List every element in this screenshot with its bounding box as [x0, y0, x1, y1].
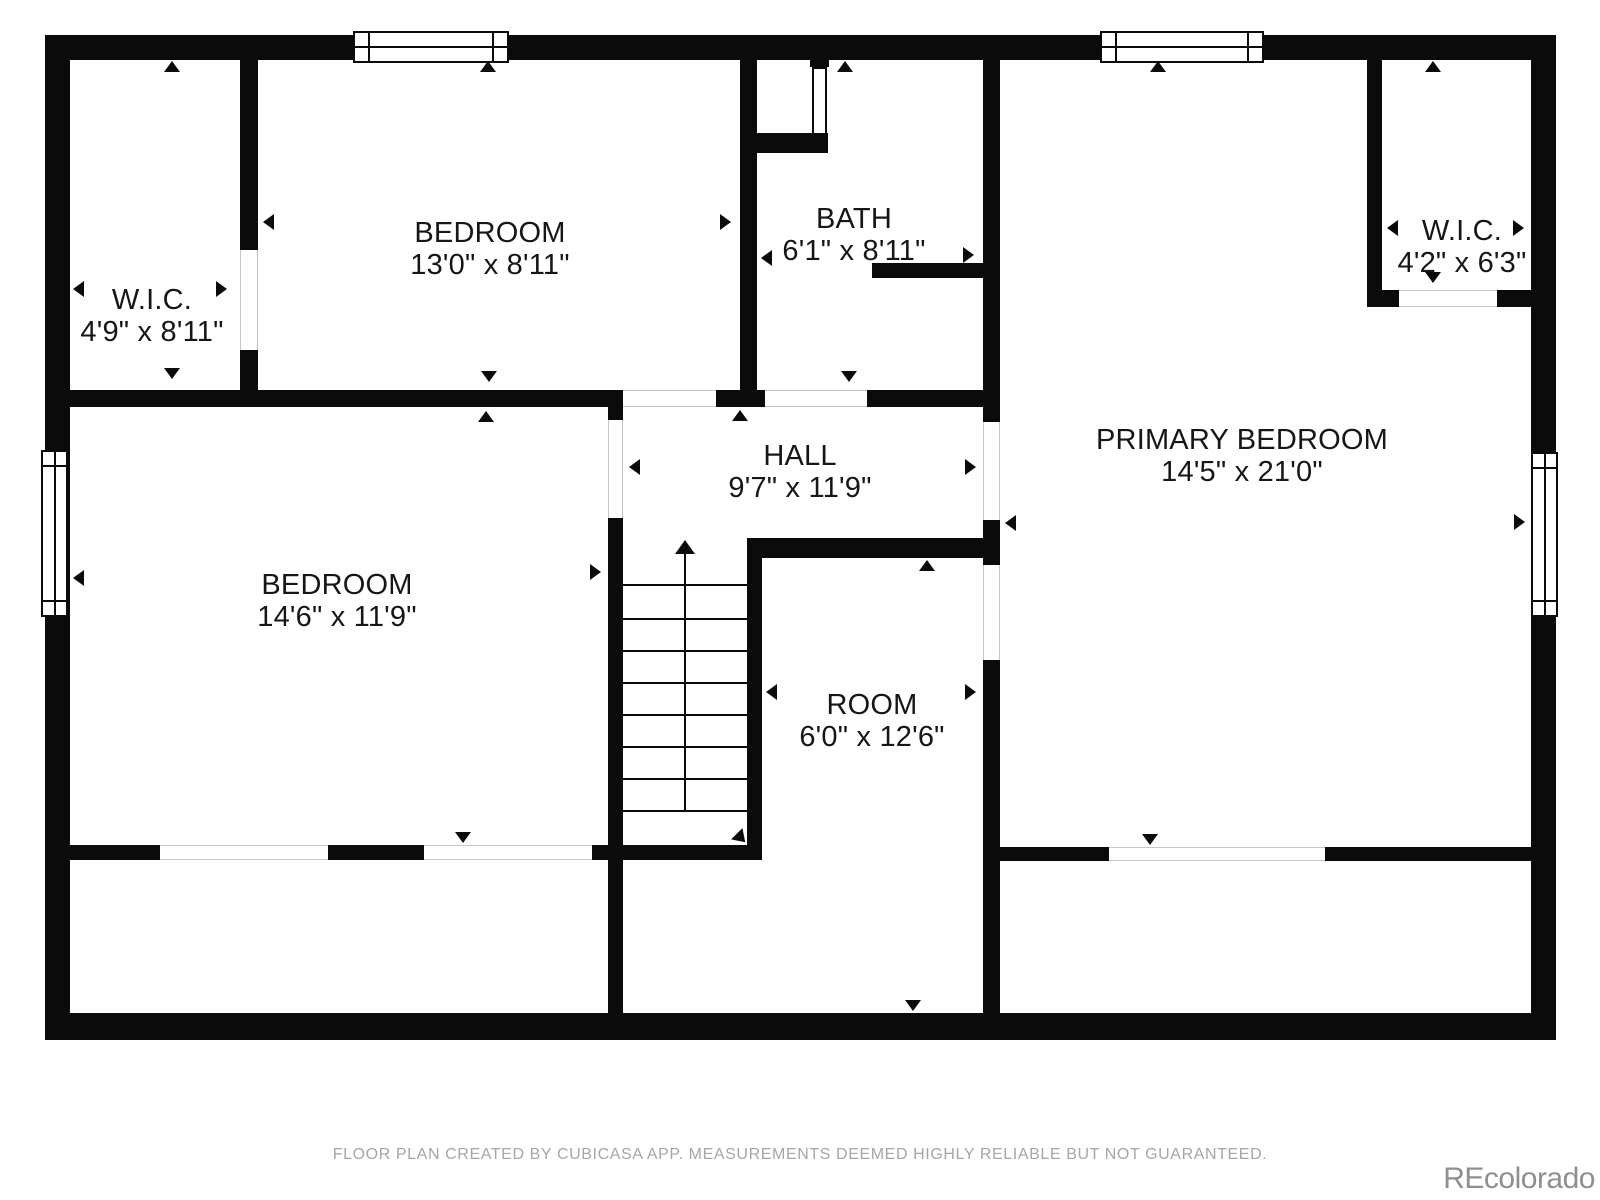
wall — [740, 60, 757, 390]
room-label-bath: BATH 6'1" x 8'11" — [782, 203, 925, 267]
window-symbol — [1100, 31, 1264, 63]
watermark-text: REcolorado — [1443, 1162, 1595, 1196]
room-name: W.I.C. — [80, 284, 223, 316]
room-name: W.I.C. — [1398, 215, 1527, 247]
wall — [1367, 290, 1399, 307]
measurement-arrow-icon — [1150, 61, 1166, 72]
measurement-arrow-icon — [841, 371, 857, 382]
window-pane-line — [492, 33, 494, 61]
wall — [608, 390, 623, 420]
window-symbol — [353, 31, 509, 63]
measurement-arrow-icon — [965, 459, 976, 475]
wall — [747, 538, 1000, 558]
wall — [592, 845, 762, 860]
door-opening — [623, 390, 716, 407]
measurement-arrow-icon — [164, 368, 180, 379]
room-label-bedroom-top: BEDROOM 13'0" x 8'11" — [410, 217, 570, 281]
room-dims: 4'2" x 6'3" — [1398, 247, 1527, 279]
wall — [983, 60, 1000, 407]
wall — [1497, 290, 1531, 307]
measurement-arrow-icon — [1142, 834, 1158, 845]
measurement-arrow-icon — [732, 410, 748, 421]
measurement-arrow-icon — [905, 1000, 921, 1011]
window-pane-line — [43, 465, 66, 467]
measurement-arrow-icon — [919, 560, 935, 571]
room-label-bedroom-left: BEDROOM 14'6" x 11'9" — [257, 569, 417, 633]
measurement-arrow-icon — [766, 684, 777, 700]
door-opening — [160, 845, 328, 860]
window-symbol — [1531, 452, 1558, 617]
room-dims: 6'0" x 12'6" — [799, 721, 944, 753]
room-name: BEDROOM — [257, 569, 417, 601]
room-name: HALL — [728, 440, 871, 472]
window-pane-line — [1533, 467, 1556, 469]
measurement-arrow-icon — [478, 411, 494, 422]
wall — [983, 520, 1000, 565]
room-dims: 9'7" x 11'9" — [728, 472, 871, 504]
measurement-arrow-icon — [480, 61, 496, 72]
window-pane-line — [1115, 33, 1117, 61]
room-dims: 4'9" x 8'11" — [80, 316, 223, 348]
wall — [867, 390, 1000, 407]
window-pane-line — [1102, 46, 1262, 48]
measurement-arrow-icon — [1425, 61, 1441, 72]
floor-plan: W.I.C. 4'9" x 8'11" BEDROOM 13'0" x 8'11… — [0, 0, 1600, 1200]
disclaimer-text: FLOOR PLAN CREATED BY CUBICASA APP. MEAS… — [0, 1146, 1600, 1164]
wall — [45, 845, 160, 860]
measurement-arrow-icon — [629, 459, 640, 475]
room-label-wic-top-right: W.I.C. 4'2" x 6'3" — [1398, 215, 1527, 279]
wall — [1367, 60, 1382, 307]
room-label-room: ROOM 6'0" x 12'6" — [799, 689, 944, 753]
door-opening — [424, 845, 592, 860]
room-name: PRIMARY BEDROOM — [1096, 424, 1388, 456]
door-opening — [1399, 290, 1497, 307]
room-dims: 14'5" x 21'0" — [1096, 456, 1388, 488]
window-pane-line — [355, 46, 507, 48]
measurement-arrow-icon — [1005, 515, 1016, 531]
room-dims: 14'6" x 11'9" — [257, 601, 417, 633]
measurement-arrow-icon — [481, 371, 497, 382]
wall — [1000, 847, 1109, 861]
measurement-arrow-icon — [1514, 514, 1525, 530]
wall — [750, 133, 828, 153]
measurement-arrow-icon — [761, 250, 772, 266]
stairs-up-arrow-icon — [675, 540, 695, 554]
measurement-arrow-icon — [164, 61, 180, 72]
room-label-wic-top-left: W.I.C. 4'9" x 8'11" — [80, 284, 223, 348]
wall — [747, 538, 762, 860]
wall — [45, 35, 1556, 60]
measurement-arrow-icon — [720, 214, 731, 230]
window-pane-line — [1533, 600, 1556, 602]
wall — [240, 60, 258, 250]
room-name: BATH — [782, 203, 925, 235]
room-name: ROOM — [799, 689, 944, 721]
room-name: BEDROOM — [410, 217, 570, 249]
room-dims: 13'0" x 8'11" — [410, 249, 570, 281]
window-pane-line — [1544, 454, 1546, 615]
door-leaf — [812, 67, 827, 135]
window-symbol — [41, 450, 68, 617]
stair-tread-line — [623, 810, 747, 812]
wall — [983, 660, 1000, 1015]
measurement-arrow-icon — [1425, 272, 1441, 283]
wall — [45, 390, 623, 407]
measurement-arrow-icon — [455, 832, 471, 843]
measurement-arrow-icon — [1513, 220, 1524, 236]
door-opening — [1109, 847, 1325, 861]
door-opening — [608, 420, 623, 518]
measurement-arrow-icon — [963, 247, 974, 263]
wall — [983, 390, 1000, 422]
measurement-arrow-icon — [73, 281, 84, 297]
wall — [810, 58, 829, 67]
door-opening — [765, 390, 867, 407]
wall — [45, 1013, 1556, 1040]
window-pane-line — [368, 33, 370, 61]
door-opening — [983, 565, 1000, 660]
room-label-hall: HALL 9'7" x 11'9" — [728, 440, 871, 504]
measurement-arrow-icon — [965, 684, 976, 700]
window-pane-line — [54, 452, 56, 615]
wall — [872, 263, 998, 278]
measurement-arrow-icon — [1387, 220, 1398, 236]
measurement-arrow-icon — [263, 214, 274, 230]
window-pane-line — [1247, 33, 1249, 61]
stair-center-line — [684, 554, 686, 810]
room-label-primary-bedroom: PRIMARY BEDROOM 14'5" x 21'0" — [1096, 424, 1388, 488]
wall — [716, 390, 765, 407]
measurement-arrow-icon — [590, 564, 601, 580]
window-pane-line — [43, 600, 66, 602]
wall — [608, 518, 623, 1015]
measurement-arrow-icon — [837, 61, 853, 72]
measurement-arrow-icon — [216, 281, 227, 297]
wall — [1325, 847, 1531, 861]
wall — [328, 845, 424, 860]
door-opening — [240, 250, 258, 350]
measurement-arrow-icon — [73, 570, 84, 586]
door-opening — [983, 422, 1000, 520]
